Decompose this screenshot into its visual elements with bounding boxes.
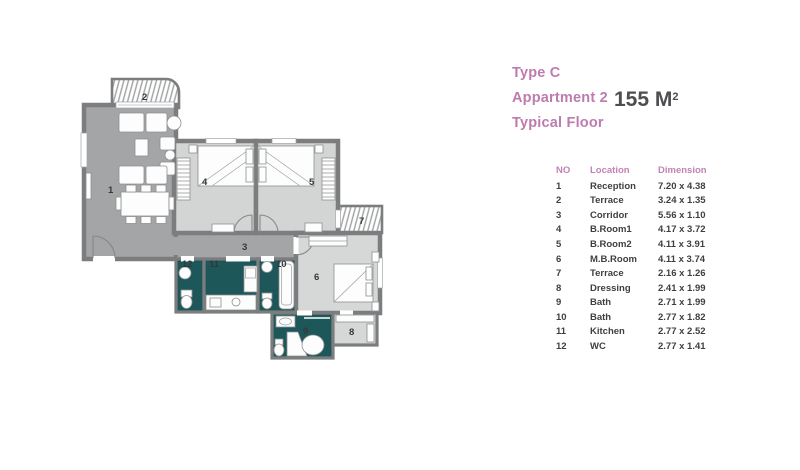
plan-label-3: 3 [242,242,247,253]
table-row: 10Bath2.77 x 1.82 [556,310,730,325]
table-row: 1Reception7.20 x 4.38 [556,179,730,194]
plan-label-11: 11 [209,259,220,270]
plan-label-7: 7 [359,216,364,227]
plan-label-2: 2 [142,92,147,103]
table-row: 6M.B.Room4.11 x 3.74 [556,252,730,267]
title-apartment: Appartment 2 [512,86,608,111]
plan-label-10: 10 [276,259,287,270]
plan-label-8: 8 [349,327,354,338]
title-floor: Typical Floor [512,111,608,136]
plan-label-5: 5 [309,177,315,188]
table-row: 7Terrace2.16 x 1.26 [556,266,730,281]
plan-label-12: 12 [182,259,193,270]
table-row: 8Dressing2.41 x 1.99 [556,281,730,296]
table-row: 2Terrace3.24 x 1.35 [556,194,730,209]
plan-label-9: 9 [303,326,308,337]
table-row: 5B.Room24.11 x 3.91 [556,237,730,252]
col-header-no: NO [556,165,590,176]
table-row: 4B.Room14.17 x 3.72 [556,223,730,238]
table-row: 11Kitchen2.77 x 2.52 [556,324,730,339]
floorplan-page: 1 2 3 4 5 6 7 8 9 10 11 12 Type C Appart… [0,0,800,470]
plan-label-6: 6 [314,272,319,283]
table-header-row: NO Location Dimension [556,162,730,179]
corridor-opening [172,237,181,255]
table-row: 9Bath2.71 x 1.99 [556,295,730,310]
title-type: Type C [512,61,608,86]
area-superscript: 2 [672,91,678,103]
dimension-table: NO Location Dimension 1Reception7.20 x 4… [556,162,730,354]
col-header-dimension: Dimension [658,165,730,176]
plan-label-1: 1 [108,185,114,196]
col-header-location: Location [590,165,658,176]
area-value: 155 M2 [614,88,679,112]
table-row: 3Corridor5.56 x 1.10 [556,208,730,223]
plan-label-4: 4 [202,177,208,188]
floor-plan-drawing: 1 2 3 4 5 6 7 8 9 10 11 12 [60,70,430,370]
title-block: Type C Appartment 2 Typical Floor [512,61,608,136]
room-corridor [176,233,296,259]
table-row: 12WC2.77 x 1.41 [556,339,730,354]
